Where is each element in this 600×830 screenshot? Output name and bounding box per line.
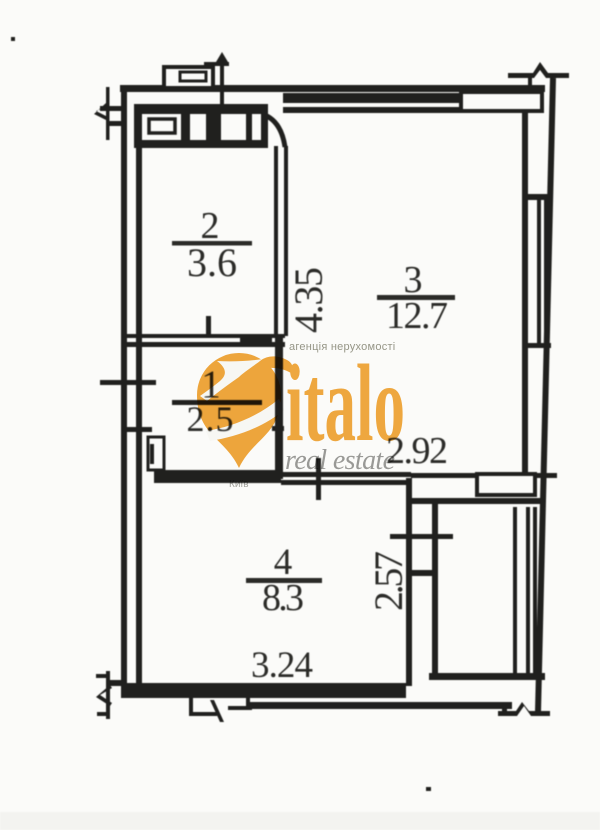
svg-text:Київ: Київ [229,479,249,490]
svg-text:real estate: real estate [285,445,395,476]
